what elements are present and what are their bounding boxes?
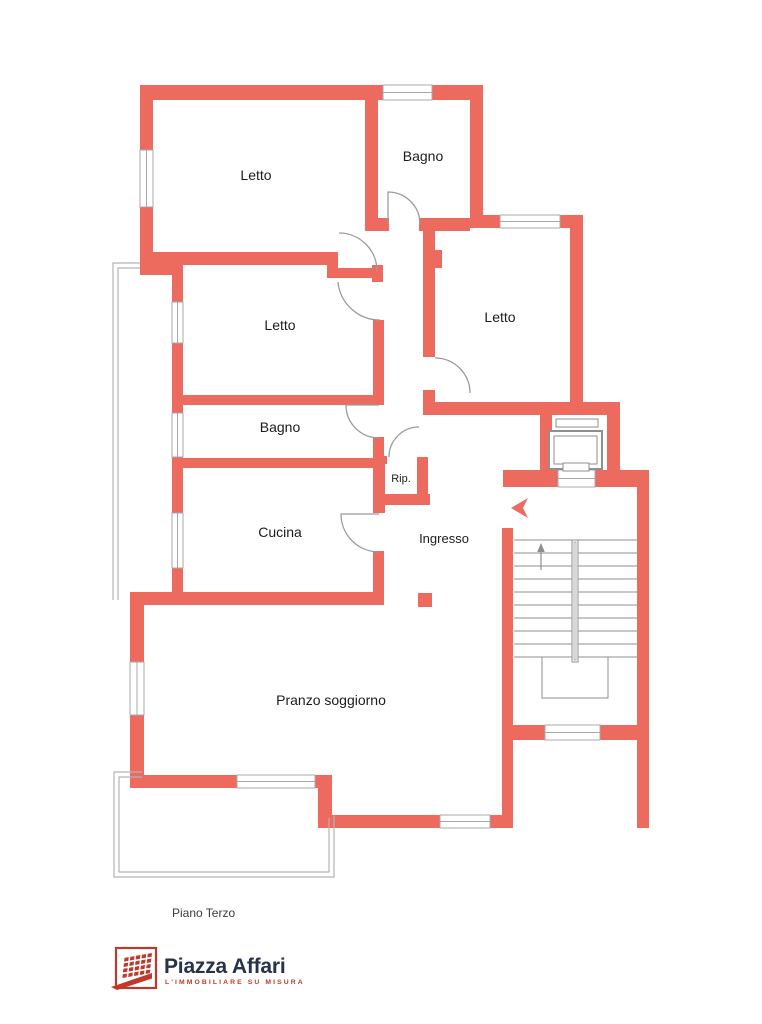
elevator-sill [563,463,589,471]
door-arc [435,358,470,393]
staircase [514,540,637,698]
room-label-pranzo-soggiorno: Pranzo soggiorno [276,692,386,708]
door-arc [388,192,420,224]
floorplan-page: Letto Bagno Letto Letto Bagno Cucina Rip… [0,0,762,1024]
door-arc [338,282,380,320]
door-arc [341,514,379,552]
pillar [418,593,432,607]
entrance-arrow-icon [511,498,528,518]
door-arc [339,233,377,271]
window [172,513,183,568]
side-balcony [113,263,140,600]
window [545,725,600,740]
window [440,815,490,828]
bottom-balcony [119,777,329,872]
room-label-bagno-top: Bagno [403,148,444,164]
door-arc [346,405,379,438]
window [172,302,183,343]
room-label-cucina: Cucina [258,524,302,540]
brand-logo: Piazza Affari L'IMMOBILIARE SU MISURA [111,948,305,990]
side-balcony [118,268,140,600]
window [383,85,432,100]
window [172,413,183,457]
stair-landing-outline [542,657,608,698]
elevator-door [558,470,595,487]
window [140,150,153,207]
stair-stringer-inner [574,542,576,660]
room-labels: Letto Bagno Letto Letto Bagno Cucina Rip… [240,148,515,708]
room-label-ripostiglio: Rip. [391,473,411,485]
logo-tagline: L'IMMOBILIARE SU MISURA [165,979,305,986]
window [130,662,144,715]
door-arc [389,427,419,457]
room-label-letto-right: Letto [484,309,515,325]
floorplan-drawing: Letto Bagno Letto Letto Bagno Cucina Rip… [0,0,762,1024]
room-label-letto-top: Letto [240,167,271,183]
logo-name: Piazza Affari [164,955,286,978]
window [237,775,315,788]
elevator-icon [549,419,602,471]
room-label-letto-middle: Letto [264,317,295,333]
window [500,215,560,228]
room-label-ingresso: Ingresso [419,531,469,546]
floor-label: Piano Terzo [172,906,235,920]
room-label-bagno-middle: Bagno [260,419,301,435]
